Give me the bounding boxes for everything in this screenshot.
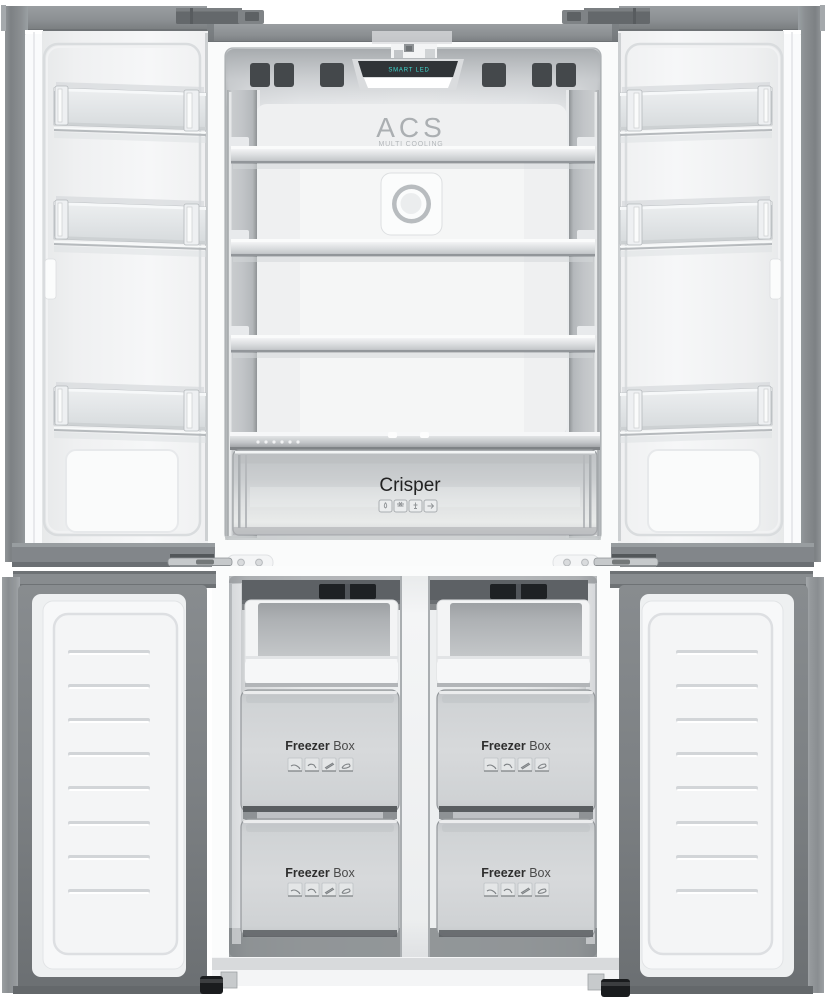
svg-text:Freezer Box: Freezer Box [285, 866, 355, 880]
svg-text:Freezer Box: Freezer Box [285, 739, 355, 753]
svg-text:ACS: ACS [376, 112, 446, 143]
svg-text:Freezer Box: Freezer Box [481, 866, 551, 880]
svg-text:SMART LED: SMART LED [388, 68, 429, 74]
svg-text:Crisper: Crisper [379, 475, 441, 496]
svg-text:Freezer Box: Freezer Box [481, 739, 551, 753]
